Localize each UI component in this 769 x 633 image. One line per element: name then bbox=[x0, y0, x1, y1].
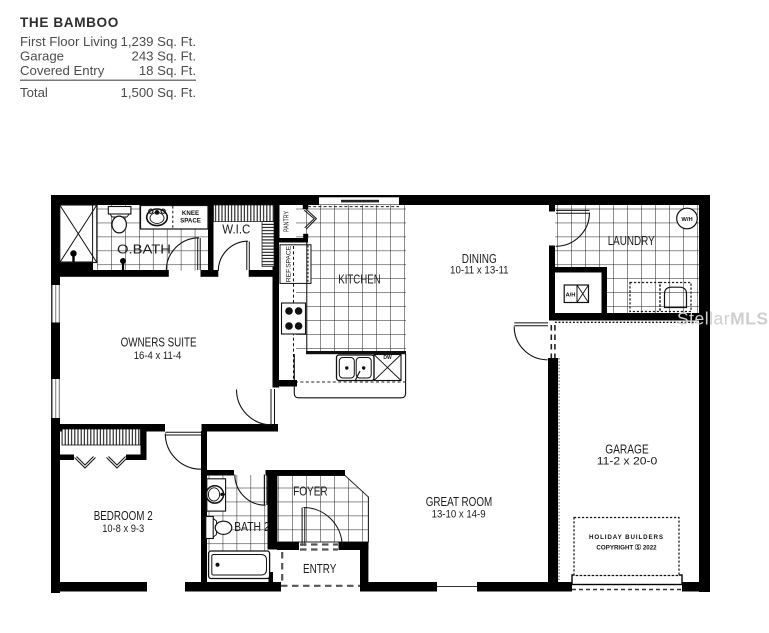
svg-text:1,239 Sq. Ft.: 1,239 Sq. Ft. bbox=[120, 34, 196, 49]
svg-text:18 Sq. Ft.: 18 Sq. Ft. bbox=[139, 63, 196, 78]
svg-text:Covered Entry: Covered Entry bbox=[20, 63, 105, 78]
svg-text:DW: DW bbox=[383, 355, 392, 361]
svg-text:KITCHEN: KITCHEN bbox=[338, 273, 381, 287]
svg-text:10-11 x 13-11: 10-11 x 13-11 bbox=[450, 264, 509, 276]
svg-text:HOLIDAY BUILDERS: HOLIDAY BUILDERS bbox=[589, 534, 664, 541]
svg-text:W/H: W/H bbox=[681, 217, 692, 223]
svg-text:BATH 2: BATH 2 bbox=[234, 520, 270, 534]
svg-text:PANTRY: PANTRY bbox=[284, 211, 291, 232]
svg-text:Garage: Garage bbox=[20, 49, 64, 64]
svg-text:FOYER: FOYER bbox=[293, 485, 328, 499]
svg-text:Total: Total bbox=[20, 85, 48, 100]
svg-text:KNEE: KNEE bbox=[182, 210, 199, 217]
svg-text:GREAT ROOM: GREAT ROOM bbox=[426, 495, 493, 509]
svg-text:THE BAMBOO: THE BAMBOO bbox=[20, 15, 119, 30]
svg-text:BEDROOM 2: BEDROOM 2 bbox=[94, 509, 153, 523]
svg-text:First Floor Living: First Floor Living bbox=[20, 34, 117, 49]
svg-text:16-4 x 11-4: 16-4 x 11-4 bbox=[134, 350, 182, 362]
svg-text:StellarMLS: StellarMLS bbox=[677, 309, 769, 329]
svg-text:W.I.C: W.I.C bbox=[222, 223, 250, 237]
svg-text:REF.SPACE: REF.SPACE bbox=[286, 245, 293, 282]
svg-text:1,500 Sq. Ft.: 1,500 Sq. Ft. bbox=[120, 85, 196, 100]
svg-text:COPYRIGHT Ⓢ 2022: COPYRIGHT Ⓢ 2022 bbox=[596, 544, 657, 552]
svg-text:13-10 x 14-9: 13-10 x 14-9 bbox=[432, 508, 486, 520]
svg-text:O.BATH: O.BATH bbox=[117, 243, 171, 257]
svg-text:GARAGE: GARAGE bbox=[605, 442, 649, 456]
svg-text:ENTRY: ENTRY bbox=[303, 562, 337, 576]
svg-text:243 Sq. Ft.: 243 Sq. Ft. bbox=[131, 49, 196, 64]
svg-text:SPACE: SPACE bbox=[180, 218, 201, 225]
svg-text:10-8 x 9-3: 10-8 x 9-3 bbox=[102, 523, 144, 535]
svg-text:11-2 x 20-0: 11-2 x 20-0 bbox=[597, 455, 658, 467]
svg-text:OWNERS SUITE: OWNERS SUITE bbox=[121, 336, 197, 350]
svg-text:LAUNDRY: LAUNDRY bbox=[608, 234, 655, 248]
svg-text:A/H: A/H bbox=[566, 292, 576, 298]
